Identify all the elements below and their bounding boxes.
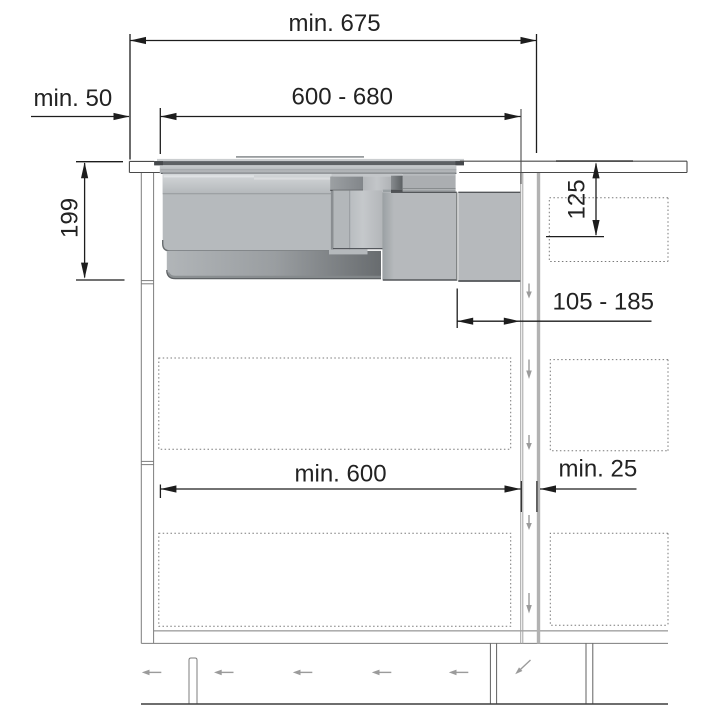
svg-text:min. 50: min. 50 bbox=[34, 85, 113, 112]
svg-text:125: 125 bbox=[564, 179, 591, 219]
svg-text:min. 25: min. 25 bbox=[559, 456, 638, 483]
svg-text:min. 600: min. 600 bbox=[295, 461, 387, 488]
svg-text:105 - 185: 105 - 185 bbox=[553, 289, 654, 316]
svg-text:600 - 680: 600 - 680 bbox=[292, 84, 393, 111]
svg-text:199: 199 bbox=[57, 198, 84, 238]
svg-text:min. 675: min. 675 bbox=[289, 10, 381, 37]
